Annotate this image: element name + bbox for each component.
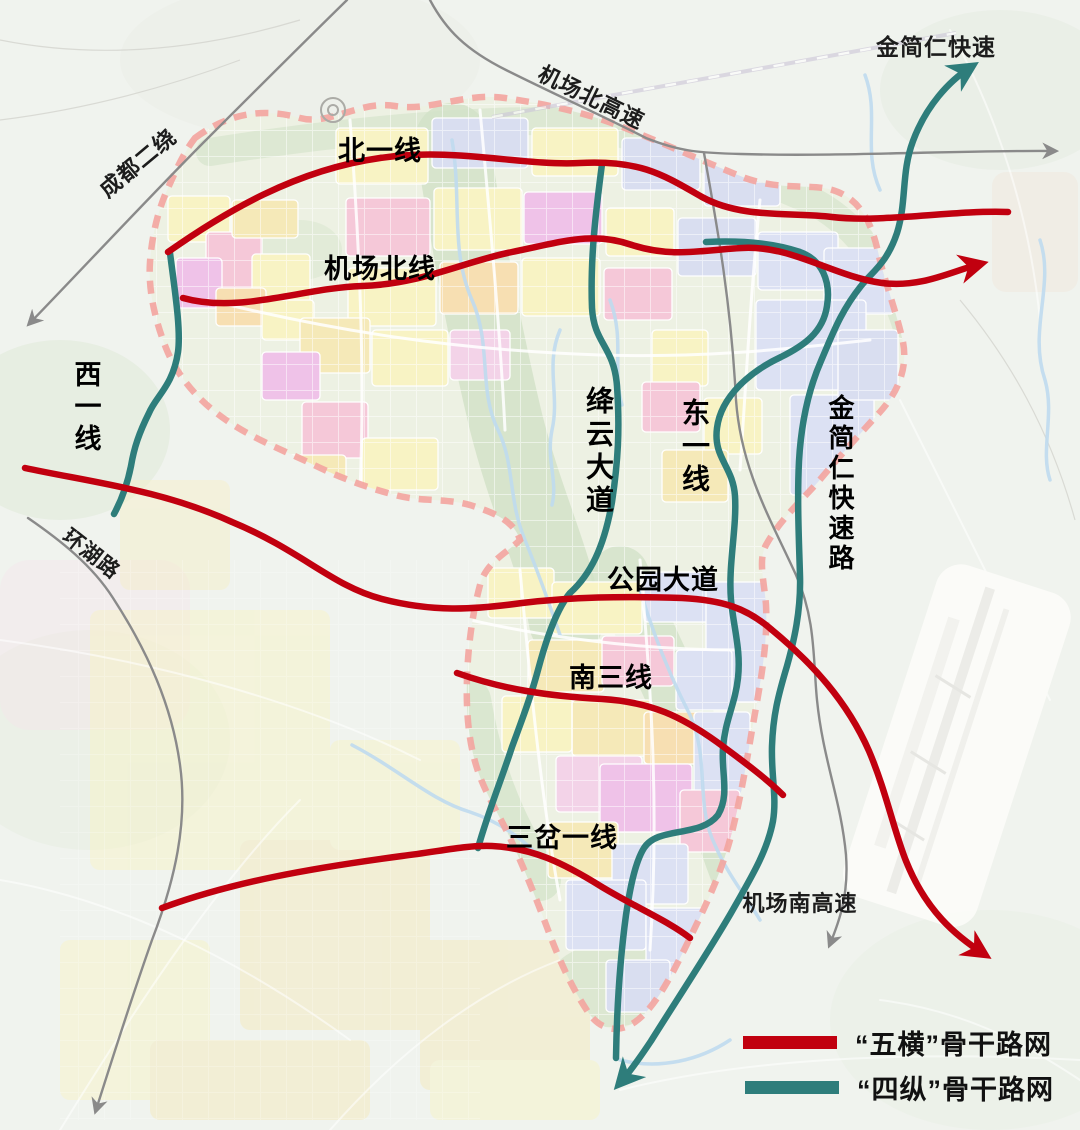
legend-label-wuheng: “五横”骨干路网 [855,1023,1052,1062]
road-label-dong-yi-xian: 东一线 [680,398,708,497]
legend-row-wuheng: “五横”骨干路网 [743,1023,1052,1062]
road-label-gongyuan-dadao: 公园大道 [607,558,719,597]
road-label-nan-san-xian: 南三线 [569,656,653,695]
legend-row-sizong: “四纵”骨干路网 [745,1068,1054,1107]
road-label-jinjianren-kuaisulu: 金简仁快速路 [827,394,853,574]
road-label-jiangyun-dadao: 绛云大道 [584,386,612,518]
road-label-jinjianren-kuaisu: 金简仁快速 [876,28,996,62]
road-label-san-cha-yi-xian: 三岔一线 [506,816,618,855]
road-label-jichang-nan-gaosu: 机场南高速 [742,886,857,918]
road-label-xi-yi-xian: 西一线 [72,360,99,456]
legend-swatch-wuheng [743,1036,837,1049]
legend-swatch-sizong [745,1081,839,1094]
legend-label-sizong: “四纵”骨干路网 [857,1068,1054,1107]
planning-map: 北一线 机场北线 公园大道 南三线 三岔一线 西一线 绛云大道 东一线 金简仁快… [0,0,1080,1130]
road-label-bei-yi-xian: 北一线 [338,129,422,168]
map-canvas [0,0,1080,1130]
road-label-jichang-bei-xian: 机场北线 [324,247,436,286]
